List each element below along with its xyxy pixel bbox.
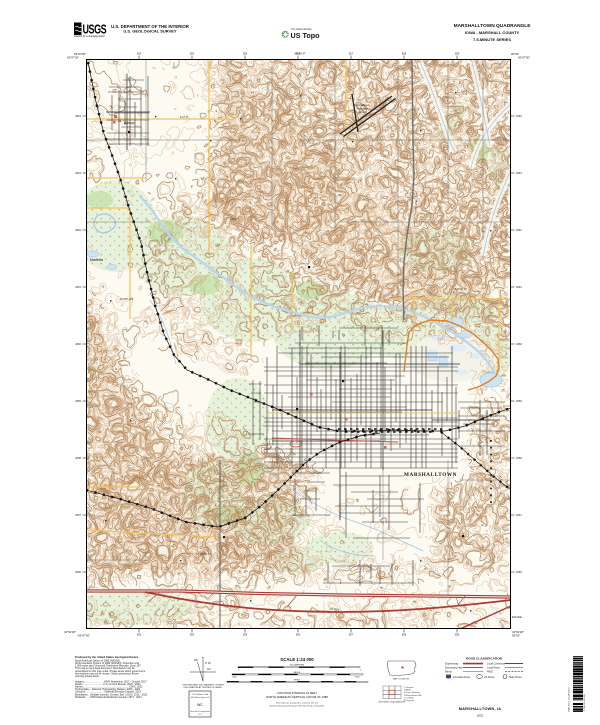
svg-text:4660: 4660	[75, 342, 81, 346]
svg-text:557: 557	[349, 633, 354, 637]
svg-text:100,000-m Square ID: 100,000-m Square ID	[190, 697, 210, 699]
svg-text:4656: 4656	[75, 570, 81, 574]
svg-text:4658: 4658	[75, 456, 81, 460]
svg-text:305TH ST: 305TH ST	[294, 53, 306, 56]
svg-text:2022: 2022	[477, 713, 484, 717]
svg-text:GN: GN	[207, 669, 211, 671]
svg-text:4663: 4663	[516, 171, 522, 175]
svg-text:6 Ferguson: 6 Ferguson	[404, 700, 414, 702]
svg-text:entering private lands.: entering private lands.	[75, 675, 100, 678]
svg-text:Interstate Route: Interstate Route	[453, 676, 471, 679]
svg-text:HWY 14: HWY 14	[414, 200, 417, 210]
svg-text:559: 559	[455, 633, 460, 637]
svg-text:555: 555	[243, 52, 248, 56]
svg-text:FEET: FEET	[294, 679, 300, 681]
svg-text:State Route: State Route	[509, 676, 522, 679]
svg-text:US Route: US Route	[484, 676, 495, 679]
svg-text:557: 557	[349, 52, 354, 56]
svg-text:553: 553	[137, 52, 142, 56]
svg-text:US 30: US 30	[330, 608, 337, 611]
svg-text:41°52'30": 41°52'30"	[64, 630, 76, 634]
svg-text:MARSHALLTOWN, IA: MARSHALLTOWN, IA	[459, 706, 502, 711]
svg-text:This map was produced to confo: This map was produced to conform with th…	[276, 702, 319, 705]
svg-text:3 Green Mountain: 3 Green Mountain	[404, 691, 420, 694]
svg-text:1: 1	[238, 669, 240, 671]
svg-text:KNAPP AVE: KNAPP AVE	[120, 298, 134, 301]
svg-text:558: 558	[402, 52, 407, 56]
svg-text:553: 553	[137, 633, 142, 637]
svg-text:Wetlands.......FWS National We: Wetlands.......FWS National Wetlands Inv…	[75, 696, 142, 699]
svg-text:4WD: 4WD	[487, 671, 493, 674]
svg-text:ADJOINING QUADRANGLES: ADJOINING QUADRANGLES	[379, 701, 406, 704]
svg-text:559: 559	[455, 52, 460, 56]
svg-text:SCALE 1:24 000: SCALE 1:24 000	[280, 657, 314, 662]
svg-text:556: 556	[296, 633, 301, 637]
svg-text:US Topo: US Topo	[291, 31, 321, 40]
svg-text:NORTH AMERICAN VERTICAL DATUM: NORTH AMERICAN VERTICAL DATUM OF 1988	[266, 695, 328, 699]
svg-text:4660: 4660	[516, 342, 522, 346]
svg-text:555: 555	[243, 633, 248, 637]
svg-text:4659: 4659	[516, 399, 522, 403]
svg-text:DECLINATION AT CENTER OF SHEET: DECLINATION AT CENTER OF SHEET	[184, 686, 223, 689]
svg-text:4664: 4664	[75, 114, 81, 118]
svg-text:Ramp: Ramp	[445, 671, 452, 674]
svg-text:1000: 1000	[232, 677, 237, 679]
svg-text:MARSHALLTOWN: MARSHALLTOWN	[404, 472, 457, 478]
svg-text:554: 554	[190, 52, 195, 56]
svg-text:7.5-MINUTE SERIES: 7.5-MINUTE SERIES	[473, 37, 511, 42]
svg-text:Expressway: Expressway	[445, 663, 459, 666]
svg-text:Municipal: Municipal	[357, 107, 368, 111]
svg-text:MN: MN	[194, 660, 198, 662]
svg-text:Marshalltown: Marshalltown	[354, 103, 370, 107]
svg-text:4657: 4657	[516, 513, 522, 517]
svg-text:IOWA - MARSHALL COUNTY: IOWA - MARSHALL COUNTY	[465, 30, 520, 35]
svg-text:U.S. National Grid: U.S. National Grid	[192, 693, 208, 696]
svg-text:554: 554	[190, 633, 195, 637]
svg-text:Secondary Hwy: Secondary Hwy	[445, 667, 463, 670]
svg-text:93°00': 93°00'	[512, 634, 520, 638]
svg-text:MAP LOCATION: MAP LOCATION	[393, 678, 410, 681]
svg-text:MILES: MILES	[294, 672, 301, 674]
svg-text:MARSHALLTOWN QUADRANGLE: MARSHALLTOWN QUADRANGLE	[454, 23, 532, 29]
svg-text:4661: 4661	[75, 285, 81, 289]
svg-text:42°07'30": 42°07'30"	[67, 56, 79, 60]
svg-text:ISBN 978-1-18-045790-9: ISBN 978-1-18-045790-9	[569, 687, 571, 712]
svg-text:National Geospatial Program US: National Geospatial Program US Topo Prod…	[269, 704, 325, 707]
svg-text:★: ★	[202, 656, 204, 659]
svg-text:4662: 4662	[516, 228, 522, 232]
svg-text:UTM GRID AND 2022 MAGNETIC NOR: UTM GRID AND 2022 MAGNETIC NORTH	[182, 683, 224, 686]
svg-text:Albion: Albion	[124, 120, 135, 125]
svg-text:Local Road: Local Road	[487, 667, 500, 670]
svg-text:4664: 4664	[516, 114, 522, 118]
svg-text:E 18 ST: E 18 ST	[180, 116, 189, 119]
svg-text:ROAD CLASSIFICATION: ROAD CLASSIFICATION	[466, 657, 502, 661]
svg-text:4662: 4662	[75, 228, 81, 232]
svg-text:230TH ST: 230TH ST	[200, 553, 211, 556]
svg-text:science for a changing world: science for a changing world	[74, 35, 105, 38]
svg-text:42°07'30": 42°07'30"	[518, 56, 530, 60]
svg-text:KILOMETERS: KILOMETERS	[290, 665, 305, 667]
svg-text:2: 2	[360, 669, 362, 671]
svg-text:2 Albion: 2 Albion	[404, 689, 411, 692]
svg-text:558: 558	[402, 633, 407, 637]
svg-text:4656: 4656	[516, 570, 522, 574]
svg-text:0° 16´: 0° 16´	[205, 662, 211, 665]
svg-text:WC: WC	[197, 703, 203, 707]
svg-text:240TH ST: 240TH ST	[230, 218, 241, 221]
svg-text:9 781180 457909: 9 781180 457909	[584, 693, 586, 711]
svg-text:-93°07'30": -93°07'30"	[77, 634, 90, 638]
svg-text:Grid Zone Designation: Grid Zone Designation	[190, 710, 210, 713]
svg-text:4658: 4658	[516, 456, 522, 460]
svg-text:E29 AVE: E29 AVE	[512, 616, 522, 619]
svg-text:4657: 4657	[75, 513, 81, 517]
svg-text:Marietta: Marietta	[90, 258, 103, 262]
svg-text:15T: 15T	[198, 714, 202, 716]
svg-text:9000: 9000	[355, 677, 360, 679]
svg-text:4663: 4663	[75, 171, 81, 175]
svg-text:Local Connector: Local Connector	[487, 663, 505, 666]
svg-text:4659: 4659	[75, 399, 81, 403]
svg-text:E MAIN ST: E MAIN ST	[455, 288, 467, 291]
svg-text:U.S. GEOLOGICAL SURVEY: U.S. GEOLOGICAL SURVEY	[123, 29, 177, 34]
svg-text:4661: 4661	[516, 285, 522, 289]
svg-text:Airport: Airport	[358, 110, 366, 114]
svg-text:4 Marshalltown NW: 4 Marshalltown NW	[404, 694, 421, 697]
